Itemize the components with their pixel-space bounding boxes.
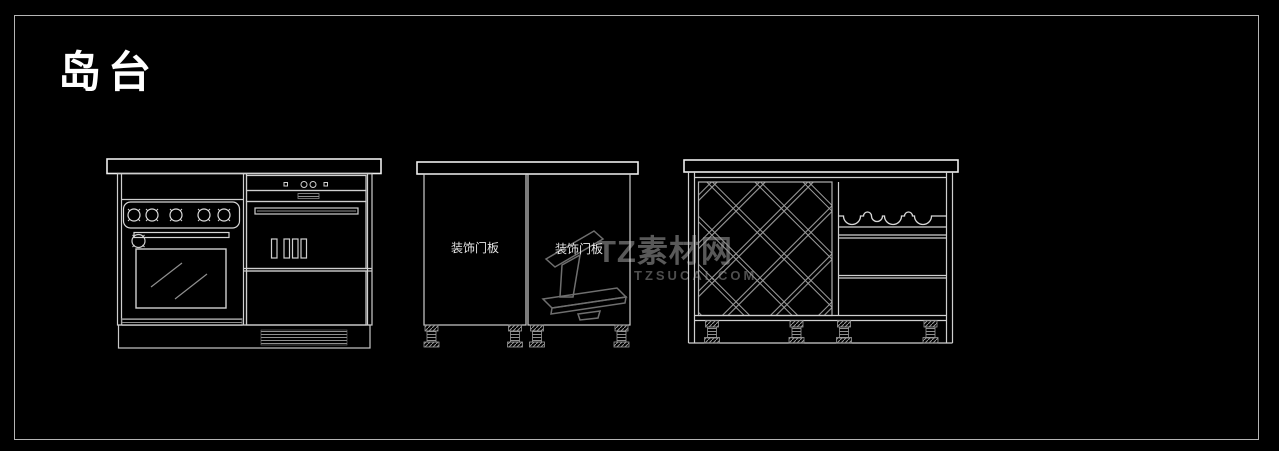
control-icons [284, 182, 328, 188]
drawer-front [247, 271, 367, 325]
elevation-linework [0, 0, 1279, 451]
adjustable-feet [705, 321, 939, 344]
cooktop-knobs [128, 209, 230, 221]
appliance-section [244, 176, 373, 326]
open-shelf [839, 276, 947, 279]
oven-handle [134, 233, 229, 238]
countertop [417, 162, 638, 174]
oven-window [136, 249, 226, 308]
countertop [684, 160, 958, 172]
oven-door [122, 233, 242, 326]
bottom-rail [695, 316, 947, 321]
plinth-vent [261, 330, 347, 345]
glass-reflections [151, 263, 207, 299]
vent-slots [272, 239, 307, 258]
right-door [528, 174, 630, 325]
bottle-shelf [839, 227, 947, 238]
left-cabinet [107, 159, 381, 348]
adjustable-feet [424, 325, 629, 347]
bottle-wave [839, 212, 948, 225]
countertop [107, 159, 381, 174]
display-window [298, 194, 319, 199]
middle-cabinet [417, 162, 638, 347]
cad-drawing-canvas: TZ素材网 TZSUCAI.COM [0, 0, 1279, 451]
right-cabinet [684, 160, 958, 343]
cooktop-knob-panel [124, 202, 240, 228]
left-door [424, 174, 526, 325]
wine-lattice [699, 182, 833, 316]
plinth [119, 325, 371, 348]
